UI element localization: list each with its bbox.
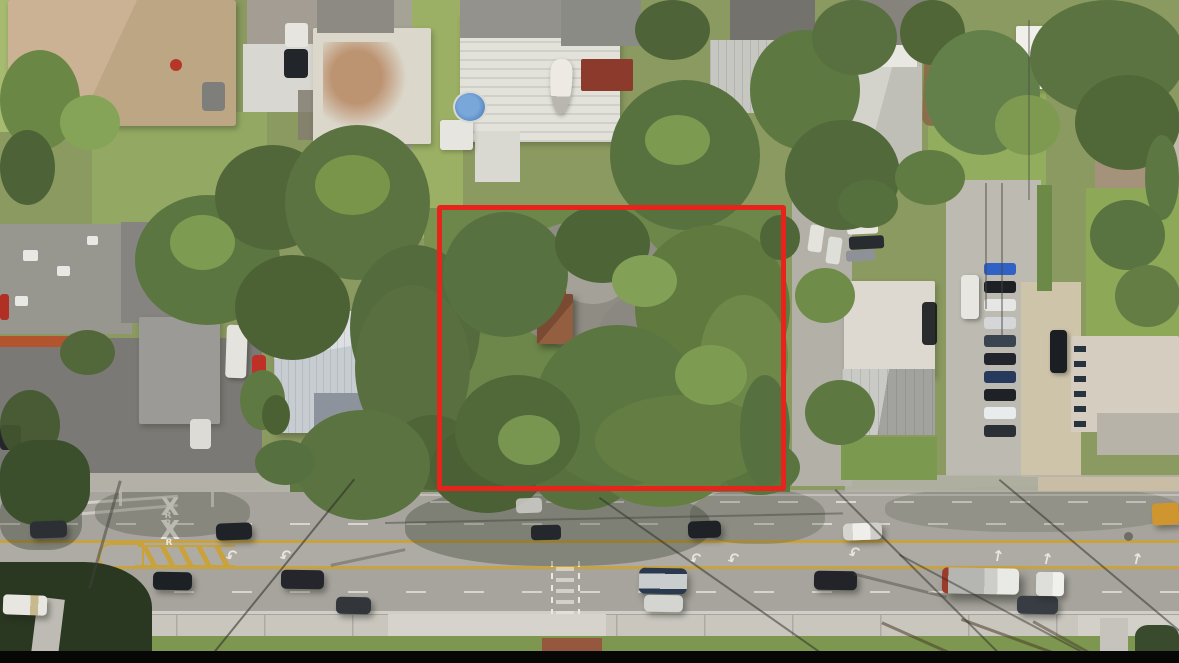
tree-canopy — [0, 130, 55, 205]
aerial-photo: XRRXR↶↶↶↶↶↑↑↑ — [0, 0, 1179, 663]
tree-canopy — [0, 440, 90, 525]
ac-unit-4 — [15, 296, 28, 306]
tree-highlight — [170, 215, 235, 270]
tree-canopy — [255, 440, 315, 485]
pavement-text-marking — [556, 561, 574, 615]
manhole-cover — [1124, 532, 1133, 541]
parked-car-2 — [984, 281, 1016, 293]
tree-canopy — [1090, 200, 1165, 270]
pole-wire-vertical-3 — [1028, 20, 1030, 200]
hedge-mid-right — [841, 437, 937, 480]
parked-car-5 — [984, 335, 1016, 347]
median-hatch-border-s — [135, 565, 235, 567]
car-eastbound-white — [644, 595, 683, 613]
truck-white-eastbound — [3, 594, 48, 616]
skylight-row — [1074, 343, 1086, 427]
tree-highlight — [315, 155, 390, 215]
parked-car-1 — [984, 263, 1016, 275]
car-red-edge-left — [0, 294, 9, 320]
ac-unit-3 — [87, 236, 98, 245]
car-gray-ne — [846, 249, 876, 262]
car-westbound-3 — [688, 520, 722, 538]
parked-car-6 — [984, 353, 1016, 365]
van-gray-top-left — [202, 82, 225, 111]
roof-shingle-top-1 — [317, 0, 394, 33]
car-eastbound-3 — [336, 597, 371, 615]
roof-gray-mid-top — [561, 0, 641, 46]
car-white-parked-left — [190, 419, 211, 449]
letterbox-bottom — [0, 651, 1179, 663]
tree-canopy — [838, 180, 898, 228]
pole-wire-vertical-1 — [985, 183, 987, 309]
tree-highlight — [60, 95, 120, 150]
car-westbound-shaded-dark — [531, 525, 561, 541]
deck-red — [581, 59, 633, 91]
truck-tanker — [942, 567, 1019, 594]
parked-car-4 — [984, 317, 1016, 329]
parcel-boundary-annotation — [437, 205, 786, 491]
rooftop-flat-left — [0, 224, 132, 334]
rust-stain — [323, 42, 407, 130]
pavement-text-edge-left — [551, 561, 553, 615]
car-shaded-right — [922, 302, 937, 345]
pavement-text-edge-right — [578, 561, 580, 615]
median-hatch — [140, 546, 232, 567]
pool-round-blue — [453, 91, 487, 123]
pole-wire-vertical-2 — [1001, 183, 1003, 335]
car-dark-top-left — [284, 49, 308, 78]
car-dark-dirt-lot — [1050, 330, 1067, 373]
hedge-column-right — [1037, 185, 1052, 291]
tree-canopy — [60, 330, 115, 375]
ac-unit-2 — [57, 266, 70, 276]
tree-canopy — [635, 0, 710, 60]
tree-canopy — [895, 150, 965, 205]
van-white-parked-right — [961, 275, 979, 319]
bush-green-left — [262, 395, 290, 435]
tree-highlight — [645, 115, 710, 165]
parked-car-7 — [984, 371, 1016, 383]
car-eastbound-1 — [153, 572, 192, 591]
car-eastbound-5 — [1017, 596, 1058, 615]
car-westbound-1 — [30, 520, 68, 538]
car-dark-ne — [849, 235, 885, 250]
wall-north-right — [1038, 477, 1179, 491]
tree-canopy — [812, 0, 897, 75]
tree-canopy — [1115, 265, 1179, 327]
parked-car-8 — [984, 389, 1016, 401]
tree-canopy — [805, 380, 875, 445]
median-hatch-border-n — [138, 545, 235, 547]
car-westbound-shaded-white — [516, 498, 543, 514]
suv-eastbound-silver-roof — [639, 568, 687, 595]
truck-yellow-right-edge — [1151, 502, 1179, 525]
ac-unit-1 — [23, 250, 38, 261]
tree-canopy — [295, 410, 430, 520]
gazebo-roof-white — [440, 120, 473, 150]
straight-arrow-marking-1: ↑ — [990, 547, 1007, 565]
truck-white-top-left — [285, 23, 308, 47]
car-eastbound-4 — [814, 571, 857, 591]
grill-red-dot — [170, 59, 182, 71]
car-westbound-2 — [216, 522, 253, 540]
palm-tree — [795, 268, 855, 323]
car-eastbound-2 — [281, 570, 324, 590]
house-roof-hip-left — [139, 317, 220, 424]
parked-car-3 — [984, 299, 1016, 311]
building-annex-far-right — [1097, 413, 1179, 455]
parked-car-9 — [984, 407, 1016, 419]
roof-corrugated-lower — [475, 131, 520, 182]
tree-canopy — [235, 255, 350, 360]
parked-car-10 — [984, 425, 1016, 437]
truck-white-eastbound-2 — [1036, 572, 1064, 596]
